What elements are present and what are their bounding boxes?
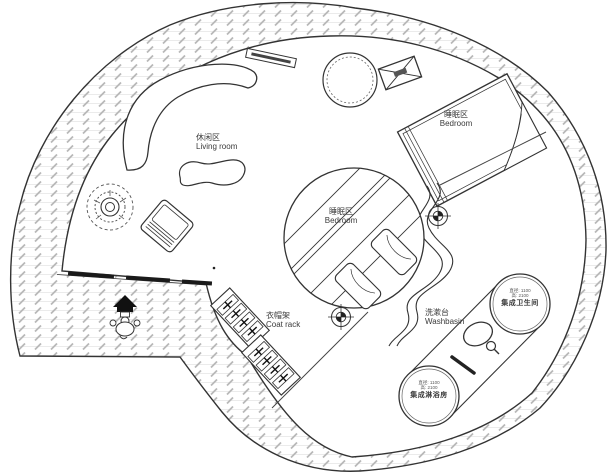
bedroom-center-label: 睡眠区 Bedroom [325,207,357,226]
bedroom-upper-label: 睡眠区 Bedroom [440,110,472,129]
washbasin-fixture [460,318,499,354]
shower-pod-name: 集成淋浴房 [410,392,448,400]
floor-plan-drawing [0,0,611,473]
plant [87,184,133,230]
round-table [323,53,377,107]
reference-dot [213,267,216,270]
washbasin-label: 洗漱台 Washbasin [425,308,464,327]
step-bar [452,357,474,373]
shower-pod-label: 直径: 1100 高: 2100 集成淋浴房 [410,381,448,400]
bedroom-upper-label-en: Bedroom [440,119,472,128]
armchair [139,199,194,254]
downlight-icon [425,203,451,229]
bedroom-upper-label-zh: 睡眠区 [440,110,472,119]
wall-shelf [246,48,297,67]
bedroom-center-label-zh: 睡眠区 [325,207,357,216]
washbasin-label-zh: 洗漱台 [425,308,464,317]
living-area-label-en: Living room [196,142,237,151]
toilet-pod-label: 直径: 1100 高: 2100 集成卫生间 [501,289,539,308]
floor-plan: 休闲区 Living room 睡眠区 Bedroom 睡眠区 Bedroom … [0,0,611,473]
coat-rack-label: 衣帽架 Coat rack [266,311,300,330]
living-area-label: 休闲区 Living room [196,133,237,152]
coffee-table [180,160,245,186]
coat-rack-label-zh: 衣帽架 [266,311,300,320]
washbasin-label-en: Washbasin [425,317,464,326]
living-area-label-zh: 休闲区 [196,133,237,142]
vent-box-icon [378,56,421,90]
toilet-pod-name: 集成卫生间 [501,300,539,308]
coat-rack-label-en: Coat rack [266,320,300,329]
shower-pod-spec2: 高: 2100 [410,386,448,391]
bedroom-center-label-en: Bedroom [325,216,357,225]
toilet-pod-spec2: 高: 2100 [501,294,539,299]
